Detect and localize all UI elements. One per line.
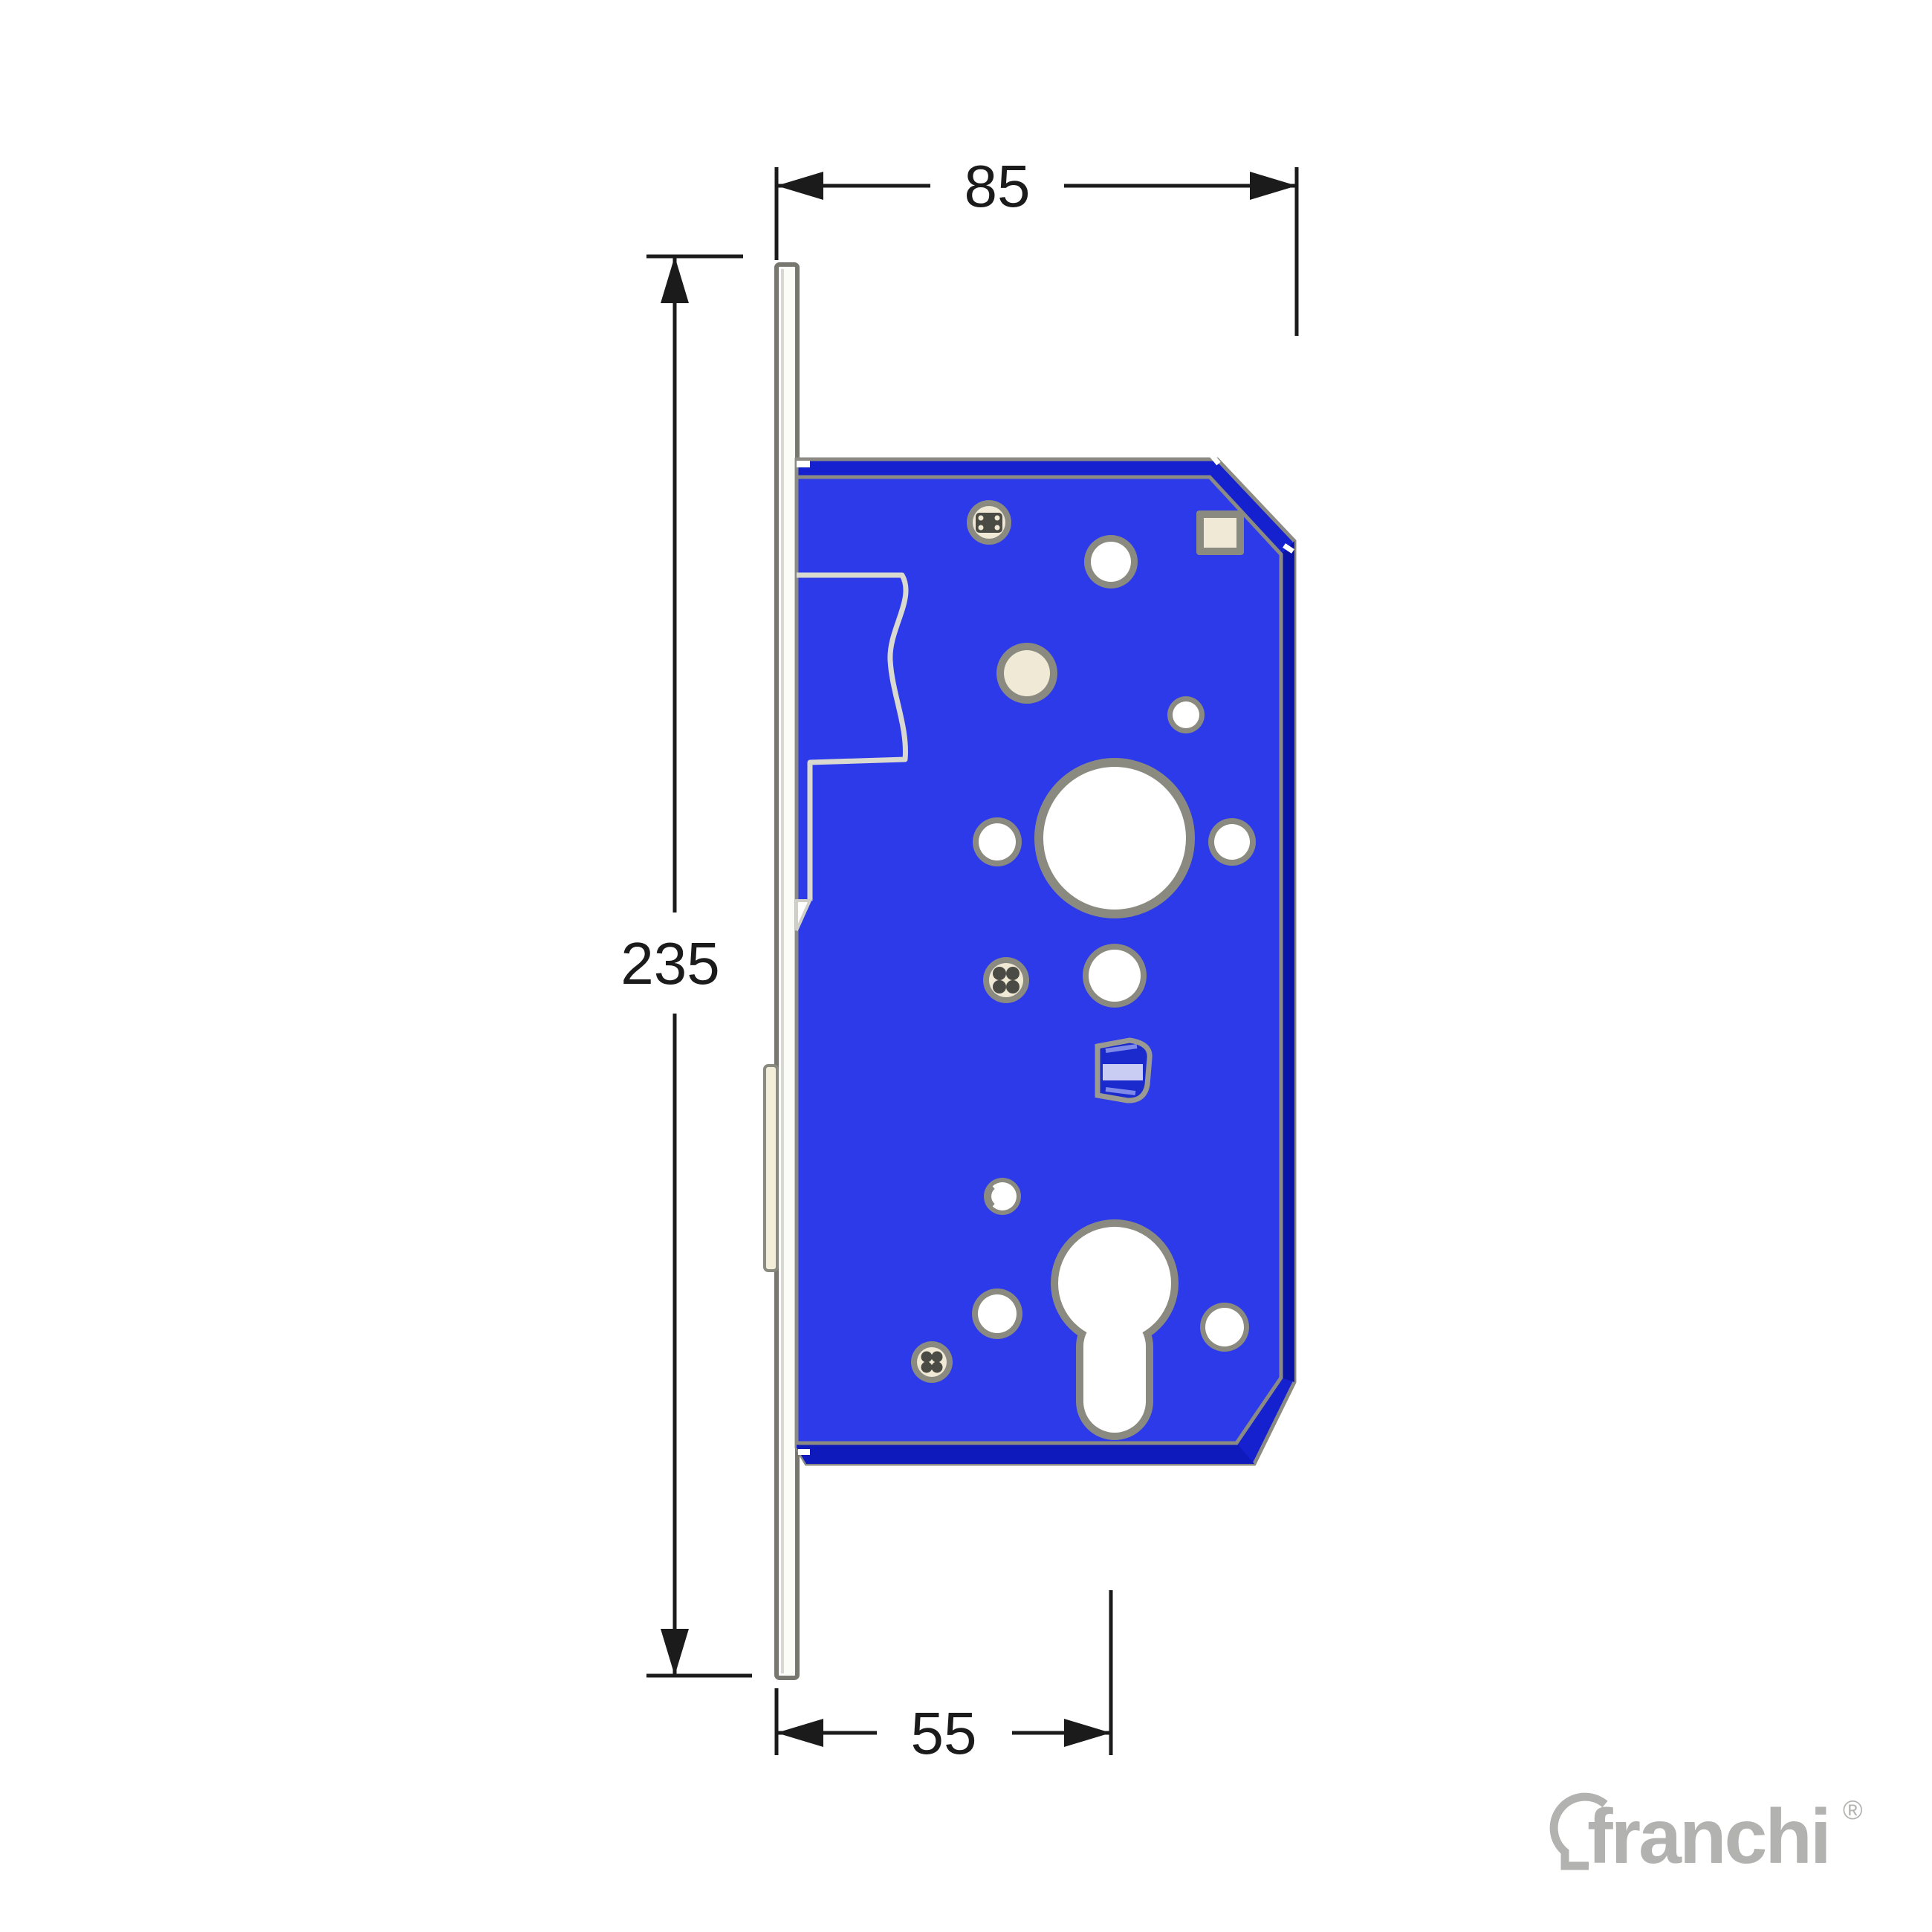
franchi-logo: franchi ® — [1554, 1794, 1862, 1880]
arrowhead-right-icon — [1250, 172, 1297, 200]
logo-text: franchi — [1587, 1794, 1829, 1880]
faceplate-strip — [777, 265, 797, 1678]
bushing-hole-upper — [996, 643, 1057, 704]
circlip-hole — [984, 1178, 1021, 1215]
arrowhead-down-icon — [661, 1629, 689, 1676]
bottom-edge-shadow — [797, 1443, 1254, 1464]
diagram-svg: 85 235 55 — [0, 0, 1932, 1932]
hub-side-hole-left — [973, 817, 1022, 866]
top-left-notch — [797, 461, 810, 467]
mid-hole — [1083, 944, 1147, 1008]
lock-dimension-diagram: 85 235 55 — [0, 0, 1932, 1932]
arrowhead-up-icon — [661, 256, 689, 303]
dimension-width: 85 — [777, 153, 1297, 336]
arrowhead-left-icon — [777, 1719, 823, 1747]
latchbolt-tip — [765, 1066, 777, 1271]
hub-side-hole-right — [1208, 818, 1256, 866]
clip-highlight — [1103, 1064, 1143, 1080]
backset-dimension-label: 55 — [911, 1700, 977, 1766]
fixing-hole-top — [1084, 535, 1138, 589]
spring-clip — [1098, 1040, 1150, 1100]
phillips-screw-mid — [983, 957, 1029, 1003]
arrowhead-left-icon — [777, 172, 823, 200]
lock-case-front-face — [797, 477, 1281, 1443]
arrowhead-right-icon — [1064, 1719, 1111, 1747]
bottom-hole-right — [1200, 1303, 1249, 1352]
width-dimension-label: 85 — [965, 153, 1031, 219]
bottom-left-notch — [798, 1449, 810, 1455]
right-edge-shadow — [1281, 541, 1294, 1382]
square-spindle-hole — [1196, 510, 1244, 555]
bottom-hole-left — [972, 1288, 1022, 1339]
faceplate — [765, 265, 797, 1678]
small-hole-upper-right — [1167, 696, 1205, 733]
registered-mark: ® — [1843, 1795, 1863, 1825]
phillips-screw-bottom — [911, 1341, 953, 1383]
handle-hub-hole — [1034, 758, 1195, 918]
height-dimension-label: 235 — [620, 930, 719, 996]
lock-body — [797, 455, 1294, 1464]
dimension-height: 235 — [620, 256, 752, 1676]
screw-hole-top — [967, 500, 1011, 545]
dimension-backset: 55 — [777, 1590, 1111, 1766]
